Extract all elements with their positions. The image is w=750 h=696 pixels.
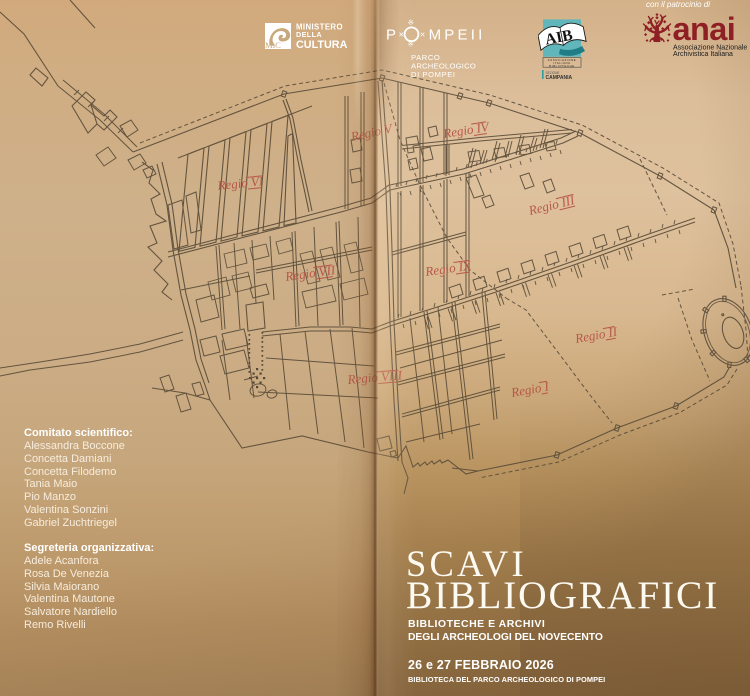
- svg-text:✕: ✕: [398, 30, 404, 39]
- svg-text:DI POMPEI: DI POMPEI: [411, 70, 456, 79]
- svg-text:※: ※: [408, 40, 414, 49]
- svg-text:CULTURA: CULTURA: [296, 39, 348, 51]
- svg-text:CAMPANIA: CAMPANIA: [546, 75, 573, 81]
- svg-text:DELLA: DELLA: [296, 30, 322, 39]
- svg-text:Archivistica Italiana: Archivistica Italiana: [673, 51, 733, 58]
- svg-text:MiC: MiC: [265, 40, 281, 50]
- svg-text:✕: ✕: [420, 30, 426, 39]
- svg-text:MPEII: MPEII: [429, 26, 486, 43]
- svg-text:※: ※: [408, 18, 414, 27]
- svg-text:P: P: [386, 26, 396, 43]
- svg-text:BIBLIOTECHE: BIBLIOTECHE: [549, 64, 574, 68]
- svg-text:anai: anai: [673, 13, 736, 47]
